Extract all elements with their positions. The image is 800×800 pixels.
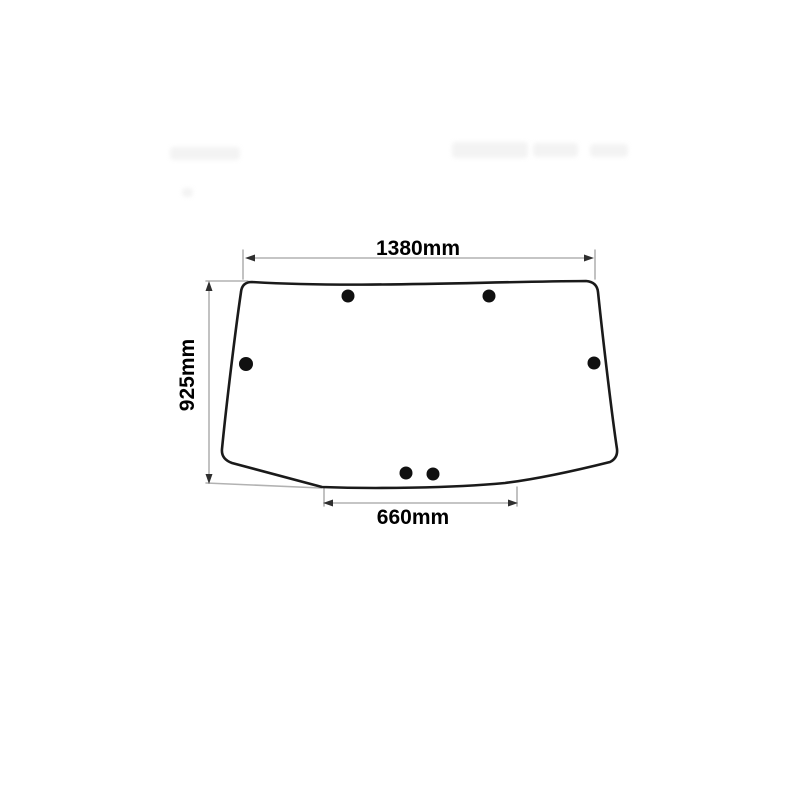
dimension-label-top-width: 1380mm — [376, 237, 460, 260]
diagram-canvas: 1380mm 925mm 660mm — [0, 0, 800, 800]
arrowhead-top-left — [245, 255, 255, 262]
dimension-label-bottom-width: 660mm — [377, 506, 449, 529]
dimension-label-left-height: 925mm — [176, 339, 199, 411]
glass-outline — [222, 281, 617, 488]
arrowhead-top-right — [584, 255, 594, 262]
extension-line-left-bottom — [206, 483, 321, 488]
mounting-hole-bottom-left — [400, 467, 413, 480]
mounting-hole-bottom-right — [427, 468, 440, 481]
mounting-hole-right — [588, 357, 601, 370]
mounting-hole-top-right — [483, 290, 496, 303]
arrowheads — [206, 255, 595, 507]
arrowhead-left-top — [206, 281, 213, 291]
mounting-holes — [239, 290, 601, 481]
dimension-lines — [206, 250, 595, 506]
technical-drawing-page: 1380mm 925mm 660mm — [0, 0, 800, 800]
mounting-hole-top-left — [342, 290, 355, 303]
mounting-hole-left — [239, 357, 253, 371]
